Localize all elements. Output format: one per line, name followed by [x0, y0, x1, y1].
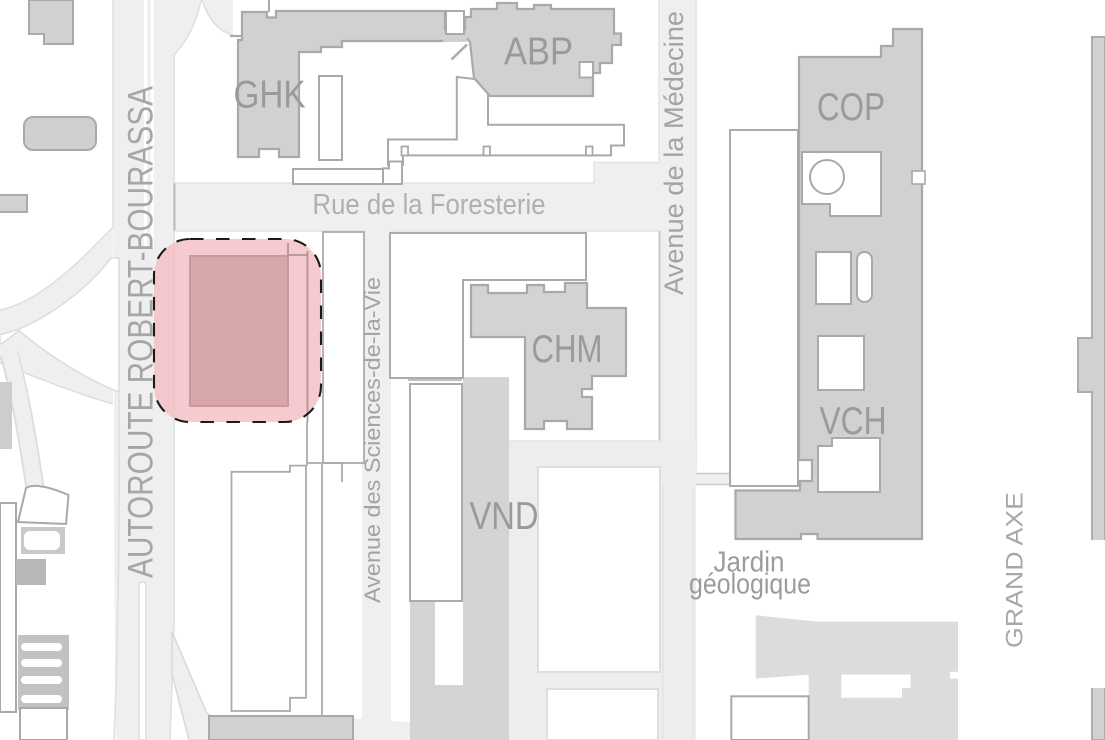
svg-text:VCH: VCH: [820, 400, 887, 443]
svg-text:GHK: GHK: [234, 74, 306, 117]
svg-text:AUTOROUTE ROBERT-BOURASSA: AUTOROUTE ROBERT-BOURASSA: [121, 85, 160, 578]
svg-text:GRAND AXE: GRAND AXE: [1001, 492, 1028, 648]
svg-text:géologique: géologique: [689, 569, 811, 601]
svg-text:COP: COP: [817, 86, 885, 129]
svg-text:Avenue des Sciences-de-la-Vie: Avenue des Sciences-de-la-Vie: [360, 277, 385, 603]
svg-text:Avenue de la Médecine: Avenue de la Médecine: [659, 11, 689, 295]
svg-text:VND: VND: [470, 495, 539, 538]
svg-text:ABP: ABP: [504, 31, 573, 74]
svg-text:CHM: CHM: [532, 328, 603, 371]
svg-text:Rue de la Foresterie: Rue de la Foresterie: [313, 189, 546, 221]
